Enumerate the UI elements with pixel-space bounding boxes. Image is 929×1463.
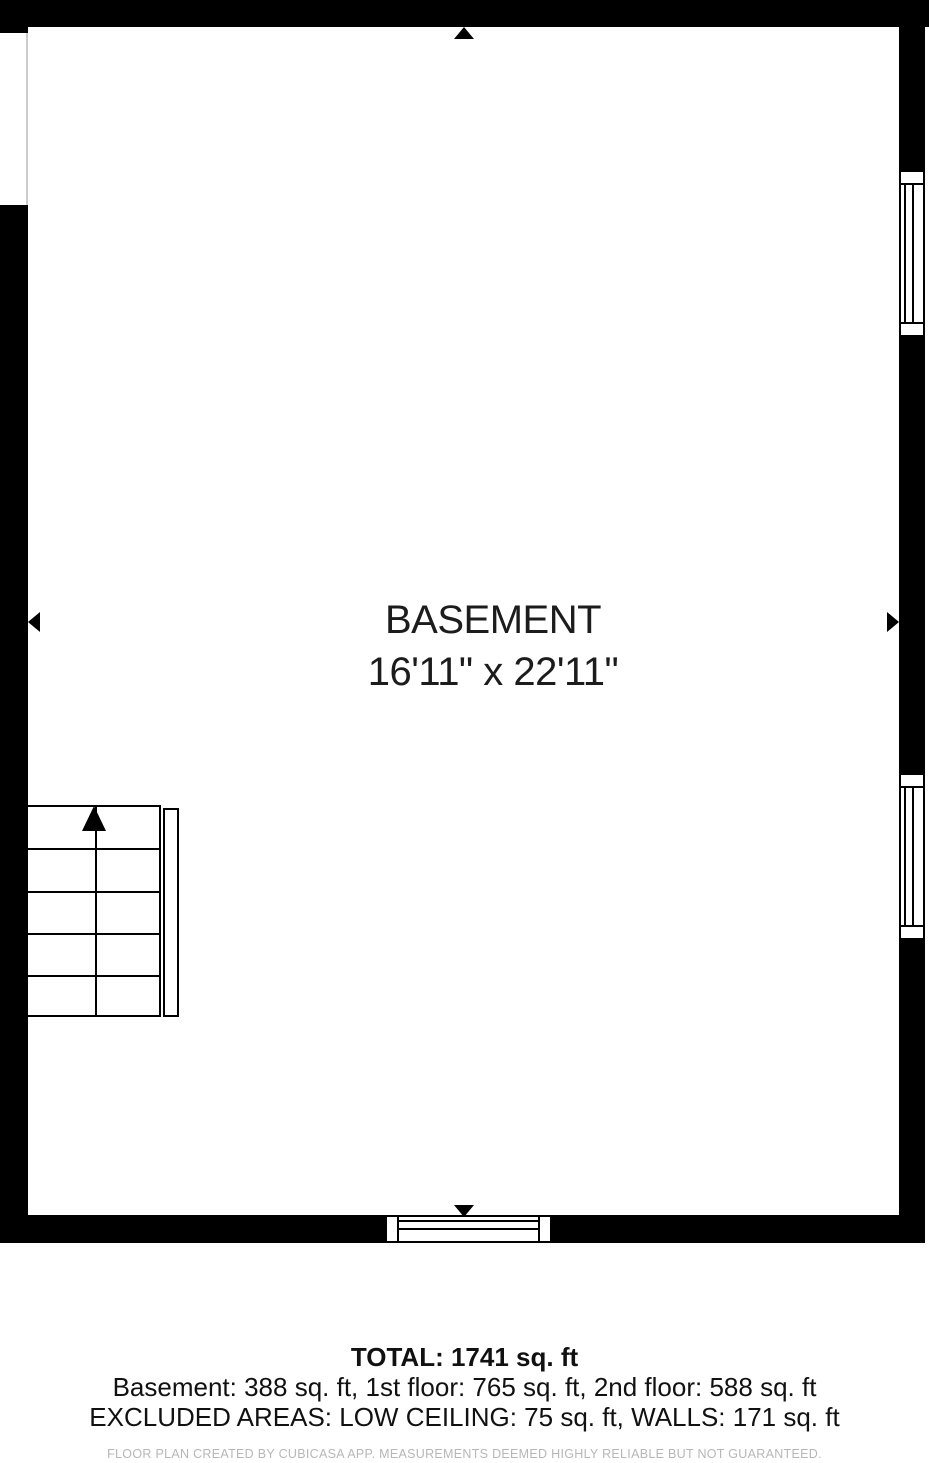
wall-opening-edge-line (26, 33, 28, 205)
area-summary-block: TOTAL: 1741 sq. ft Basement: 388 sq. ft,… (0, 1342, 929, 1432)
stair-direction-line (95, 807, 97, 1015)
wall-left-upper-stub (0, 0, 28, 33)
window-bottom (385, 1215, 552, 1243)
window-right-upper (899, 170, 925, 337)
excluded-areas-text: EXCLUDED AREAS: LOW CEILING: 75 sq. ft, … (0, 1402, 929, 1432)
window-frame-line (904, 788, 906, 925)
window-cap-line (901, 322, 923, 324)
room-name: BASEMENT (293, 594, 693, 646)
floor-breakdown-text: Basement: 388 sq. ft, 1st floor: 765 sq.… (0, 1372, 929, 1402)
stair-stringer (163, 808, 179, 1017)
window-frame-line (399, 1220, 538, 1222)
floor-plan-page: BASEMENT 16'11" x 22'11" TOTAL: 1741 sq.… (0, 0, 929, 1463)
window-glass-line (912, 788, 914, 925)
footer-disclaimer: FLOOR PLAN CREATED BY CUBICASA APP. MEAS… (0, 1447, 929, 1461)
stair-tread-line (28, 891, 159, 893)
window-right-lower (899, 773, 925, 940)
stair-tread-line (28, 975, 159, 977)
entrance-arrow-bottom-icon (454, 1205, 474, 1217)
window-glass-line (912, 185, 914, 322)
staircase (26, 805, 161, 1017)
total-area-text: TOTAL: 1741 sq. ft (0, 1342, 929, 1372)
window-glass-line (399, 1228, 538, 1230)
room-dimensions: 16'11" x 22'11" (293, 646, 693, 698)
window-cap-line (901, 925, 923, 927)
room-label-block: BASEMENT 16'11" x 22'11" (293, 594, 693, 698)
stair-tread-line (28, 848, 159, 850)
entrance-arrow-top-icon (454, 27, 474, 39)
window-frame-line (904, 185, 906, 322)
wall-top (0, 0, 929, 27)
wall-left (0, 205, 28, 1243)
window-cap-line (538, 1217, 540, 1241)
entrance-arrow-left-icon (28, 612, 40, 632)
entrance-arrow-right-icon (887, 612, 899, 632)
stair-tread-line (28, 933, 159, 935)
stair-up-arrow-icon (82, 806, 106, 831)
